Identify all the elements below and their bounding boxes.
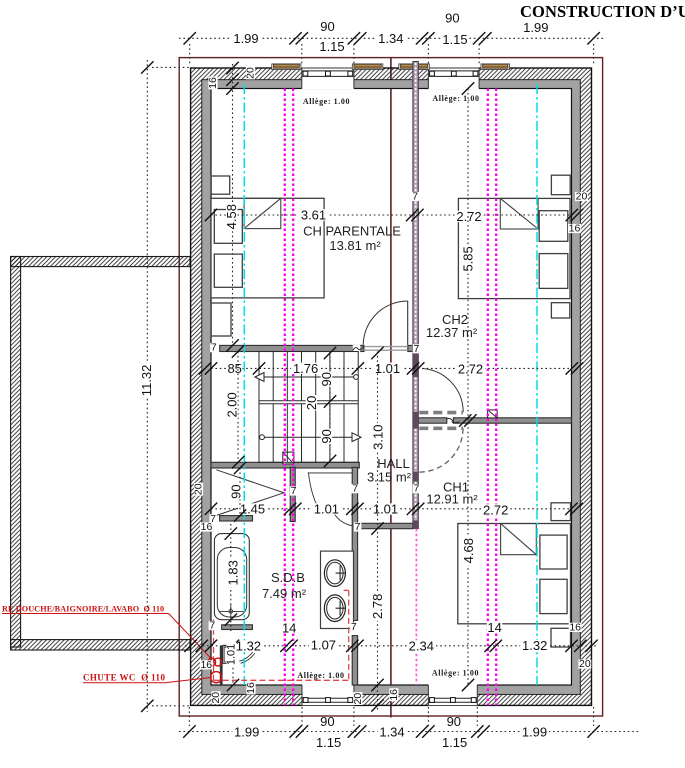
svg-text:2.78: 2.78 — [370, 594, 385, 619]
svg-text:14: 14 — [282, 620, 296, 635]
svg-text:S.D.B: S.D.B — [271, 570, 305, 585]
svg-text:12.37 m²: 12.37 m² — [426, 325, 478, 340]
svg-text:11.32: 11.32 — [139, 365, 154, 397]
svg-text:90: 90 — [320, 19, 334, 34]
svg-text:2.34: 2.34 — [409, 639, 434, 654]
svg-text:7: 7 — [352, 483, 358, 495]
svg-text:90: 90 — [228, 484, 243, 498]
svg-text:1.99: 1.99 — [523, 20, 548, 35]
svg-text:16: 16 — [245, 682, 257, 694]
svg-text:16: 16 — [200, 659, 212, 671]
svg-text:Allège: 1.00: Allège: 1.00 — [432, 94, 479, 103]
svg-text:90: 90 — [447, 714, 461, 729]
svg-text:1.01: 1.01 — [314, 502, 339, 517]
svg-text:20: 20 — [352, 693, 364, 705]
svg-text:85: 85 — [227, 361, 241, 376]
svg-text:7: 7 — [209, 620, 215, 632]
svg-text:16: 16 — [569, 621, 581, 633]
svg-text:1.15: 1.15 — [442, 32, 467, 47]
svg-text:1.99: 1.99 — [522, 724, 547, 739]
svg-text:1.34: 1.34 — [379, 724, 404, 739]
svg-text:12.91 m²: 12.91 m² — [426, 492, 478, 507]
svg-text:1.34: 1.34 — [378, 31, 403, 46]
svg-text:1.45: 1.45 — [240, 502, 265, 517]
svg-text:7.49 m²: 7.49 m² — [262, 586, 307, 601]
svg-text:1.15: 1.15 — [319, 39, 344, 54]
svg-text:3.10: 3.10 — [370, 425, 385, 450]
svg-text:16: 16 — [207, 77, 219, 89]
svg-text:3.15 m²: 3.15 m² — [367, 470, 412, 485]
svg-text:4.58: 4.58 — [224, 204, 239, 229]
svg-text:14: 14 — [487, 620, 501, 635]
svg-text:16: 16 — [201, 521, 213, 533]
svg-text:1.15: 1.15 — [316, 735, 341, 750]
svg-text:20: 20 — [576, 191, 588, 203]
svg-text:20: 20 — [304, 396, 319, 410]
svg-text:1.01: 1.01 — [375, 361, 400, 376]
svg-text:RE DOUCHE/BAIGNOIRE/LAVABO Ø: RE DOUCHE/BAIGNOIRE/LAVABO Ø 110 — [2, 604, 164, 613]
svg-text:Allège: 1.00: Allège: 1.00 — [297, 671, 344, 680]
svg-text:7: 7 — [351, 621, 357, 633]
svg-text:2.00: 2.00 — [225, 392, 240, 417]
svg-text:2.72: 2.72 — [458, 361, 483, 376]
svg-text:Allège: 1.00: Allège: 1.00 — [303, 97, 350, 106]
svg-text:20: 20 — [193, 483, 205, 495]
svg-text:1.76: 1.76 — [293, 361, 318, 376]
svg-text:20: 20 — [245, 67, 257, 79]
svg-text:2.72: 2.72 — [456, 209, 481, 224]
svg-text:20: 20 — [579, 658, 591, 670]
svg-text:90: 90 — [319, 372, 334, 386]
svg-text:3.61: 3.61 — [301, 208, 326, 223]
svg-text:1.01: 1.01 — [225, 644, 237, 665]
svg-text:CHUTE WC Ø 110: CHUTE WC Ø 110 — [83, 673, 165, 683]
svg-text:20: 20 — [210, 692, 222, 704]
svg-text:Allège: 1.00: Allège: 1.00 — [432, 669, 479, 678]
svg-text:7: 7 — [211, 342, 217, 354]
svg-text:2.72: 2.72 — [483, 503, 508, 518]
svg-text:1.01: 1.01 — [373, 502, 398, 517]
svg-text:90: 90 — [320, 714, 334, 729]
svg-text:5.85: 5.85 — [460, 246, 475, 271]
svg-text:1.32: 1.32 — [522, 638, 547, 653]
svg-text:CONSTRUCTION D’U: CONSTRUCTION D’U — [520, 2, 685, 21]
svg-text:4.68: 4.68 — [461, 538, 476, 563]
svg-text:1.15: 1.15 — [442, 735, 467, 750]
svg-text:7: 7 — [291, 485, 297, 497]
svg-text:16: 16 — [569, 223, 581, 235]
svg-text:90: 90 — [445, 11, 459, 26]
svg-text:16: 16 — [388, 689, 400, 701]
svg-text:13.81 m²: 13.81 m² — [329, 238, 381, 253]
svg-text:7: 7 — [355, 521, 361, 533]
svg-text:7: 7 — [413, 483, 419, 495]
svg-text:1.07: 1.07 — [311, 637, 336, 652]
svg-text:7: 7 — [413, 343, 419, 355]
svg-text:1.99: 1.99 — [233, 31, 258, 46]
svg-text:1.99: 1.99 — [234, 724, 259, 739]
svg-text:7: 7 — [412, 191, 418, 203]
svg-text:1.83: 1.83 — [226, 560, 241, 585]
svg-text:CH PARENTALE: CH PARENTALE — [303, 224, 401, 239]
svg-text:1.32: 1.32 — [236, 639, 261, 654]
svg-text:90: 90 — [319, 429, 334, 443]
